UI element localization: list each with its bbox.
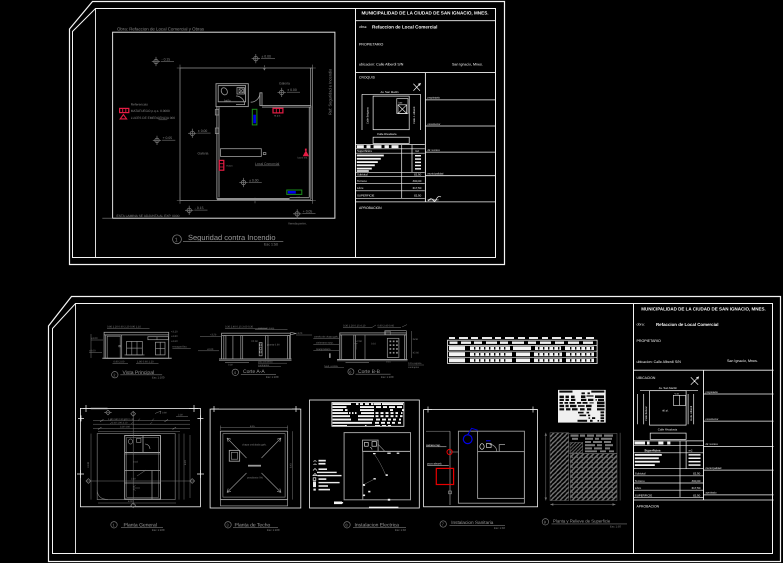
svg-text:Refaccion de Local Comercial: Refaccion de Local Comercial: [656, 322, 718, 327]
svg-text:baño: baño: [224, 99, 231, 103]
svg-text:± 0.00: ± 0.00: [198, 129, 208, 133]
svg-text:8.00: 8.00: [128, 500, 133, 503]
svg-text:Esc 1:50: Esc 1:50: [494, 526, 505, 530]
svg-text:h2.60: h2.60: [252, 340, 259, 343]
svg-text:8.40: 8.40: [290, 463, 293, 468]
svg-text:+3.20: +3.20: [171, 330, 178, 333]
svg-text:m.p.s: m.p.s: [274, 115, 281, 118]
svg-text:0.15: 0.15: [386, 360, 391, 363]
svg-text:cielorraso susp.: cielorraso susp.: [258, 327, 275, 330]
svg-text:+ 0.05: + 0.05: [163, 136, 173, 140]
svg-text:Esc 1:100: Esc 1:100: [381, 375, 394, 379]
svg-text:APROBACION: APROBACION: [637, 505, 660, 509]
svg-text:PROPIETARIO: PROPIETARIO: [359, 43, 383, 47]
svg-text:± 0.00: ± 0.00: [287, 88, 297, 92]
svg-text:400,00: 400,00: [692, 479, 701, 483]
svg-text:Esc 1:100: Esc 1:100: [152, 375, 165, 379]
svg-text:Ref: Seguridad e Incendio: Ref: Seguridad e Incendio: [328, 68, 333, 115]
svg-text:Calle Rivadavia: Calle Rivadavia: [658, 427, 678, 431]
svg-text:Planta y Relieve de Superficie: Planta y Relieve de Superficie: [553, 519, 611, 524]
svg-text:Calle Belgrano: Calle Belgrano: [367, 106, 370, 124]
svg-text:San Ignacio, Mnes.: San Ignacio, Mnes.: [452, 62, 483, 66]
svg-text:CROQUIS: CROQUIS: [359, 76, 376, 80]
svg-text:ubicacion: Calle Alberdi S/N: ubicacion: Calle Alberdi S/N: [359, 62, 404, 66]
svg-text:m2: m2: [415, 149, 419, 153]
svg-text:Libre: Libre: [635, 486, 642, 490]
svg-text:luces em.: luces em.: [298, 156, 309, 159]
svg-text:0.30 1.20 0.15 4.10: 0.30 1.20 0.15 4.10: [343, 324, 366, 327]
svg-text:Superficies: Superficies: [644, 449, 661, 453]
svg-text:Esc 1:50: Esc 1:50: [395, 528, 406, 532]
svg-text:Esc 1:50: Esc 1:50: [264, 242, 278, 246]
svg-text:SUPERFICIE: SUPERFICIE: [357, 194, 374, 198]
svg-text:propietario: propietario: [428, 97, 441, 100]
svg-text:obra:: obra:: [637, 322, 645, 326]
svg-text:Superficies: Superficies: [357, 149, 372, 153]
svg-text:APROBACION: APROBACION: [359, 206, 382, 210]
svg-text:ubicacion: Calle Alberdi S/N: ubicacion: Calle Alberdi S/N: [637, 360, 682, 364]
svg-text:8.20: 8.20: [184, 460, 187, 465]
svg-text:Instalacion Sanitaria: Instalacion Sanitaria: [451, 520, 494, 525]
svg-text:sal.: sal.: [297, 196, 301, 199]
svg-text:317,50: 317,50: [692, 486, 701, 490]
svg-text:0.15 carpeta: 0.15 carpeta: [408, 362, 422, 365]
svg-text:dir. tecnico: dir. tecnico: [428, 149, 441, 152]
svg-text:m.a.s: m.a.s: [226, 165, 233, 168]
svg-text:2.10: 2.10: [131, 478, 136, 481]
svg-text:Esc 1:100: Esc 1:100: [266, 375, 279, 379]
svg-text:Terreno: Terreno: [357, 179, 367, 183]
svg-text:82,50: 82,50: [414, 194, 422, 198]
svg-text:0.90: 0.90: [162, 412, 167, 415]
svg-text:municipalidad: municipalidad: [706, 467, 722, 470]
svg-text:Subtotal: Subtotal: [635, 472, 646, 476]
svg-text:2.40 1.90 3.10: 2.40 1.90 3.10: [112, 421, 128, 424]
svg-text:propietario: propietario: [706, 391, 719, 394]
svg-text:lote: lote: [399, 101, 404, 104]
svg-text:Calle Rivadavia: Calle Rivadavia: [377, 132, 397, 136]
svg-text:+ 0.05: + 0.05: [303, 210, 313, 214]
svg-text:MUNICIPALIDAD DE LA CIUDAD DE: MUNICIPALIDAD DE LA CIUDAD DE SAN IGNACI…: [641, 307, 766, 312]
svg-text:LUCES DE EMERGENCIA 000: LUCES DE EMERGENCIA 000: [131, 116, 176, 120]
svg-text:Avda. Alberdi: Avda. Alberdi: [690, 405, 693, 421]
svg-text:+2.80: +2.80: [171, 335, 178, 338]
svg-text:PROPIETARIO: PROPIETARIO: [637, 339, 661, 343]
svg-text:8.45: 8.45: [250, 425, 255, 428]
svg-text:Calle Bolivar: Calle Bolivar: [645, 406, 648, 421]
svg-text:82,50: 82,50: [693, 472, 701, 476]
svg-text:Esc 1:50: Esc 1:50: [610, 524, 621, 528]
svg-text:Subtotal: Subtotal: [357, 172, 368, 176]
svg-text:±0.00: ±0.00: [89, 350, 96, 353]
svg-text:MATAFUEGO p.q.s. 0.0000: MATAFUEGO p.q.s. 0.0000: [131, 109, 170, 113]
svg-text:puerta 0.90: puerta 0.90: [267, 344, 280, 347]
svg-text:Calle J. Alberdi: Calle J. Alberdi: [413, 106, 416, 124]
svg-text:Refaccion de Local Comercial: Refaccion de Local Comercial: [372, 24, 437, 29]
svg-text:MUNICIPALIDAD DE LA CIUDAD DE: MUNICIPALIDAD DE LA CIUDAD DE SAN IGNACI…: [361, 11, 488, 16]
svg-text:m2: m2: [689, 448, 693, 452]
svg-text:± 0.00: ± 0.00: [262, 54, 272, 58]
svg-text:82,50: 82,50: [414, 172, 422, 176]
svg-text:h.2.60: h.2.60: [355, 340, 363, 343]
svg-text:ESTA LAMINA SE ADJUNTA AL EXP.: ESTA LAMINA SE ADJUNTA AL EXP. 0000: [117, 214, 180, 218]
svg-text:400,00: 400,00: [413, 179, 422, 183]
svg-text:constructor: constructor: [428, 123, 441, 126]
svg-text:pozo absorb.: pozo absorb.: [427, 463, 442, 466]
svg-text:Referencias: Referencias: [131, 102, 148, 106]
svg-text:82,50: 82,50: [693, 493, 701, 497]
svg-text:Esc 1:100: Esc 1:100: [267, 528, 280, 532]
svg-text:constructor: constructor: [706, 418, 719, 421]
svg-text:3.30 4.60: 3.30 4.60: [120, 426, 131, 429]
svg-text:local: local: [133, 461, 138, 464]
svg-text:0.30: 0.30: [228, 364, 233, 367]
svg-text:0.10: 0.10: [371, 343, 376, 346]
svg-text:1: 1: [175, 238, 178, 244]
svg-text:Obra: Refaccion de Local Comer: Obra: Refaccion de Local Comercial y Obr…: [117, 26, 205, 31]
svg-text:Galeria: Galeria: [279, 81, 290, 85]
svg-text:Av. San Martin: Av. San Martin: [381, 90, 400, 94]
svg-text:317,50: 317,50: [413, 186, 422, 190]
svg-text:Seguridad contra Incendio: Seguridad contra Incendio: [188, 233, 276, 242]
svg-text:municipalidad: municipalidad: [428, 173, 444, 176]
svg-text:Av. San Martin: Av. San Martin: [659, 386, 678, 390]
svg-text:fund. corrida: fund. corrida: [324, 365, 338, 368]
svg-text:- 0.15: - 0.15: [162, 57, 171, 61]
svg-text:camara insp.: camara insp.: [426, 444, 441, 447]
svg-text:10.00: 10.00: [87, 461, 90, 468]
svg-text:h2.60: h2.60: [413, 351, 420, 354]
svg-text:Libre: Libre: [357, 186, 364, 190]
svg-text:contrapiso: contrapiso: [258, 364, 270, 367]
svg-text:- 0.15: - 0.15: [195, 206, 204, 210]
svg-text:pendiente 5%: pendiente 5%: [247, 477, 264, 480]
svg-text:± 0.00: ± 0.00: [249, 178, 259, 182]
svg-text:obra:: obra:: [359, 25, 367, 29]
svg-text:San Ignacio, Mnes.: San Ignacio, Mnes.: [727, 359, 758, 363]
svg-text:+3.00: +3.00: [91, 337, 98, 340]
svg-text:Terreno: Terreno: [635, 479, 645, 483]
svg-text:contrapiso: contrapiso: [408, 366, 420, 369]
svg-text:Local Comercial: Local Comercial: [255, 162, 280, 166]
svg-text:UBICACION: UBICACION: [637, 376, 656, 380]
svg-text:+2.60: +2.60: [171, 340, 178, 343]
svg-text:mamposteria: mamposteria: [316, 348, 331, 351]
svg-text:Vereda perim.: Vereda perim.: [288, 222, 307, 226]
svg-text:40 pl.: 40 pl.: [662, 409, 669, 412]
svg-text:aprobado: aprobado: [706, 492, 718, 495]
svg-text:Galeria: Galeria: [198, 151, 209, 155]
svg-text:chapa ondulada galv.: chapa ondulada galv.: [242, 444, 267, 447]
svg-text:1.20 2.80 0.90 2.10 1.40: 1.20 2.80 0.90 2.10 1.40: [108, 418, 135, 421]
svg-text:dir. tecnico: dir. tecnico: [706, 443, 719, 446]
svg-text:local: local: [413, 338, 419, 341]
svg-text:SUPERFICIE: SUPERFICIE: [635, 493, 652, 497]
svg-text:Esc 1:100: Esc 1:100: [152, 528, 165, 532]
